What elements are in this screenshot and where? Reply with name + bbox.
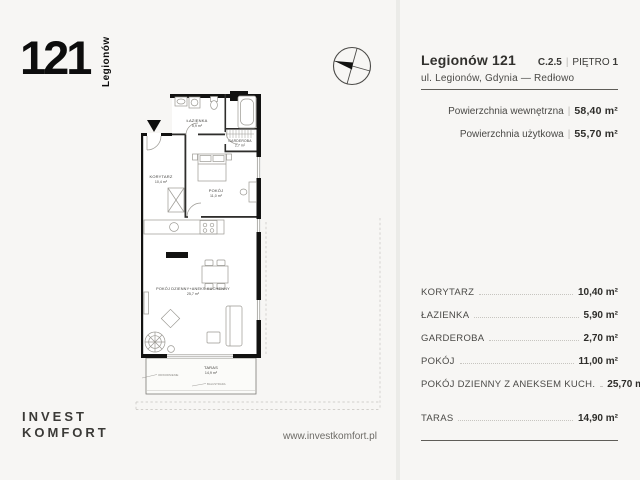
page-title: Legionów 121 (421, 52, 516, 68)
plan-label-korytarz: KORYTARZ (149, 174, 172, 179)
website-link[interactable]: www.investkomfort.pl (255, 431, 405, 442)
svg-text:11,0 m²: 11,0 m² (210, 194, 223, 198)
svg-text:5,9 m²: 5,9 m² (192, 124, 203, 128)
ottoman-icon (207, 332, 220, 343)
plan-label-lazienka: ŁAZIENKA (187, 118, 208, 123)
area-usable-row: Powierzchnia użytkowa|55,70 m² (421, 128, 618, 140)
divider-line-bottom (421, 440, 618, 441)
brand-line2: KOMFORT (22, 425, 109, 441)
logo-vertical-text: Legionów (101, 39, 112, 87)
room-row-pokoj: POKÓJ11,00 m² (421, 356, 618, 379)
area-internal-row: Powierzchnia wewnętrzna|58,40 m² (421, 105, 618, 117)
annotation-right: BALUSTRADA (207, 382, 226, 386)
info-panel: Legionów 121 C.2.5|PIĘTRO 1 ul. Legionów… (421, 0, 618, 480)
sofa-icon (226, 306, 242, 346)
svg-text:25,7 m²: 25,7 m² (187, 292, 200, 296)
brand-line1: INVEST (22, 409, 109, 425)
dotted-leader (479, 294, 573, 295)
dotted-leader (474, 317, 578, 318)
unit-floor-info: C.2.5|PIĘTRO 1 (538, 57, 618, 68)
floorplan-drawing: ŁAZIENKA 5,9 m² GARDEROBA 2,7 m² KORYTAR… (130, 82, 390, 412)
vertical-divider (396, 0, 400, 480)
logo-number: 121 (20, 34, 89, 81)
entry-arrow-icon (147, 120, 161, 132)
svg-text:14,9 m²: 14,9 m² (205, 371, 218, 375)
washer-icon (189, 97, 200, 108)
header-row: Legionów 121 C.2.5|PIĘTRO 1 (421, 52, 618, 68)
dotted-leader (460, 363, 574, 364)
room-row-lazienka: ŁAZIENKA5,90 m² (421, 310, 618, 333)
dotted-leader (458, 420, 573, 421)
bed-icon (198, 154, 226, 181)
svg-text:2,7 m²: 2,7 m² (235, 144, 246, 148)
plan-label-pokoj-dzienny: POKÓJ DZIENNY+ANEKS KUCHENNY (156, 286, 230, 291)
address: ul. Legionów, Gdynia — Redłowo (421, 73, 618, 84)
plan-label-taras: TARAS (204, 365, 218, 370)
brand-logo: INVEST KOMFORT (22, 409, 109, 441)
room-row-korytarz: KORYTARZ10,40 m² (421, 287, 618, 310)
dining-table-icon (202, 266, 228, 283)
annotation-left: ODWODNIENIE (158, 373, 178, 377)
room-row-garderoba: GARDEROBA2,70 m² (421, 333, 618, 356)
plan-label-garderoba: GARDEROBA (228, 139, 252, 143)
room-row-pokoj-dzienny: POKÓJ DZIENNY Z ANEKSEM KUCH.25,70 m² (421, 379, 618, 402)
floorplan-sheet: { "logo": { "number": "121", "vertical_t… (0, 0, 640, 480)
tv-unit-icon (144, 292, 149, 314)
dotted-leader (489, 340, 578, 341)
divider-line (421, 89, 618, 90)
room-list: KORYTARZ10,40 m² ŁAZIENKA5,90 m² GARDERO… (421, 287, 618, 402)
plan-label-pokoj: POKÓJ (209, 188, 224, 193)
taras-row: TARAS14,90 m² (421, 413, 618, 436)
desk-icon (249, 182, 257, 202)
dotted-leader (600, 386, 602, 387)
svg-text:10,4 m²: 10,4 m² (155, 180, 168, 184)
